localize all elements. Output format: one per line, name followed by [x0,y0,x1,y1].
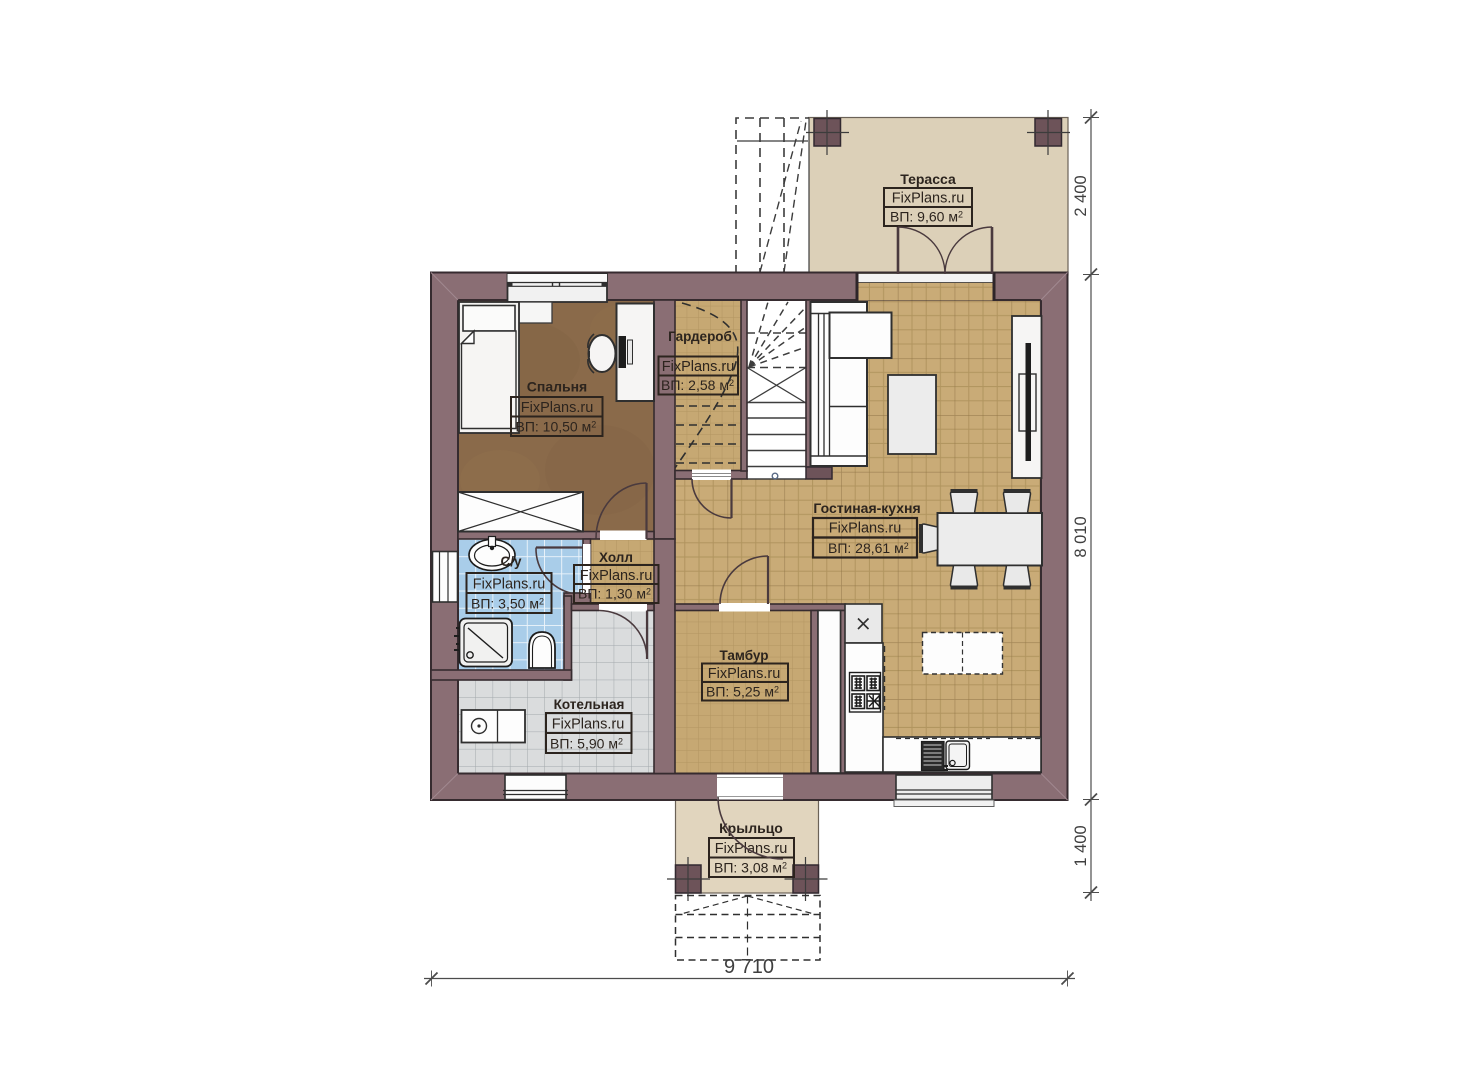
svg-text:FixPlans.ru: FixPlans.ru [580,568,653,584]
svg-text:2 400: 2 400 [1072,175,1090,216]
svg-text:ВП: 5,90 м2: ВП: 5,90 м2 [550,736,623,752]
svg-text:С/у: С/у [500,554,522,569]
svg-text:ВП: 9,60 м2: ВП: 9,60 м2 [890,209,963,225]
svg-text:FixPlans.ru: FixPlans.ru [708,666,781,682]
svg-text:FixPlans.ru: FixPlans.ru [521,400,594,416]
svg-text:Холл: Холл [599,550,633,565]
svg-text:Терасса: Терасса [900,171,956,187]
svg-text:1 400: 1 400 [1072,825,1090,866]
svg-text:ВП: 10,50 м2: ВП: 10,50 м2 [516,419,597,435]
svg-text:8 010: 8 010 [1072,516,1090,557]
svg-text:ВП: 2,58 м2: ВП: 2,58 м2 [661,377,734,393]
svg-text:ВП: 3,50 м2: ВП: 3,50 м2 [471,596,544,612]
svg-text:ВП: 5,25 м2: ВП: 5,25 м2 [706,684,779,700]
svg-text:Спальня: Спальня [527,379,587,395]
svg-text:ВП: 28,61 м2: ВП: 28,61 м2 [828,540,909,556]
svg-text:FixPlans.ru: FixPlans.ru [662,359,735,375]
svg-text:ВП: 1,30 м2: ВП: 1,30 м2 [578,586,651,602]
svg-text:Котельная: Котельная [554,697,625,712]
svg-text:Тамбур: Тамбур [720,648,769,663]
svg-text:Гардероб: Гардероб [668,329,732,344]
svg-text:FixPlans.ru: FixPlans.ru [473,577,546,593]
svg-text:FixPlans.ru: FixPlans.ru [892,191,965,207]
svg-text:Крыльцо: Крыльцо [719,820,783,836]
svg-text:FixPlans.ru: FixPlans.ru [715,841,788,857]
svg-text:FixPlans.ru: FixPlans.ru [829,521,902,537]
svg-text:Гостиная-кухня: Гостиная-кухня [813,500,920,516]
svg-text:9 710: 9 710 [724,956,774,978]
svg-text:FixPlans.ru: FixPlans.ru [552,717,625,733]
svg-text:ВП: 3,08 м2: ВП: 3,08 м2 [714,860,787,876]
